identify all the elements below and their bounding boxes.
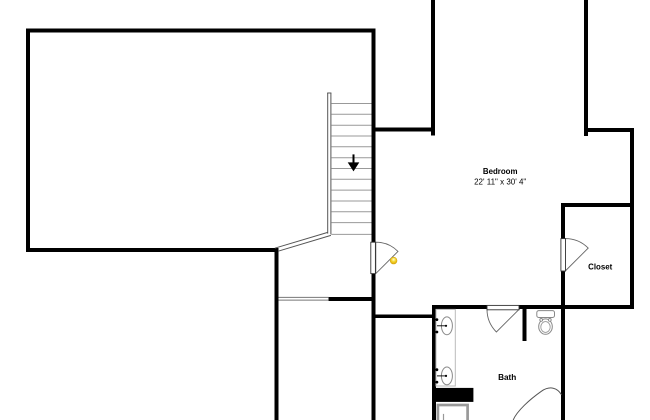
svg-text:Bath: Bath [498,373,516,382]
svg-text:Closet: Closet [588,262,612,271]
svg-text:22' 11" x 30' 4": 22' 11" x 30' 4" [474,178,526,187]
svg-text:Bedroom: Bedroom [483,167,518,176]
